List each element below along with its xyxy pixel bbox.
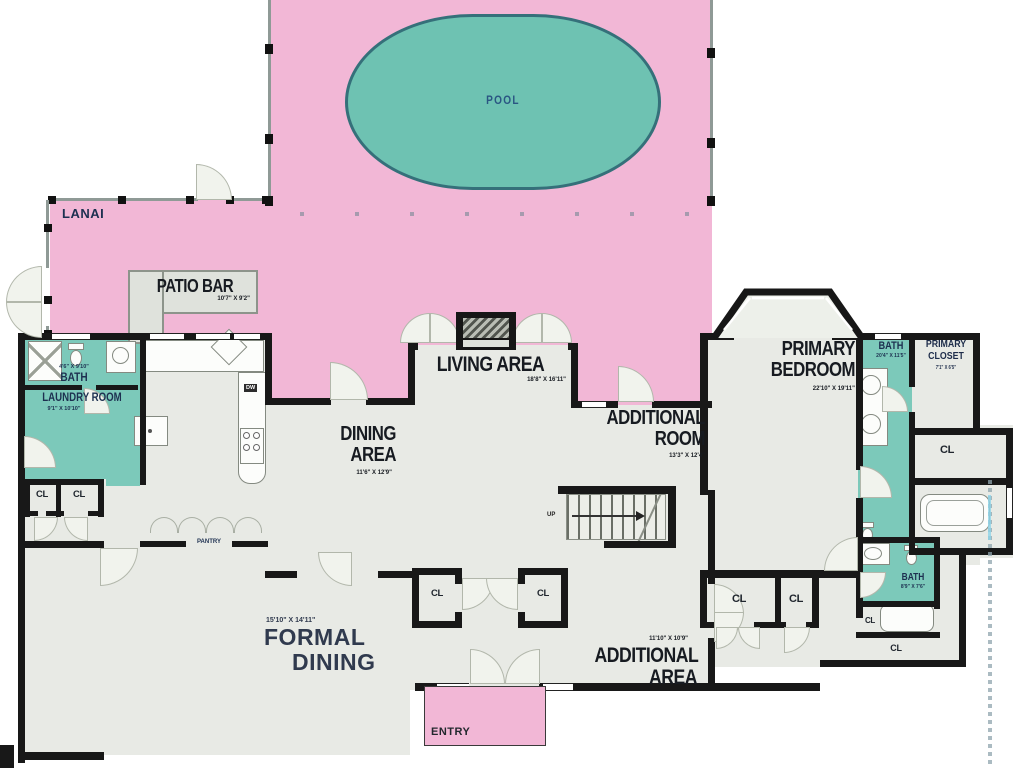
closet-label: CL — [860, 616, 880, 625]
screen-wall — [710, 0, 713, 206]
deck-dot — [465, 212, 469, 216]
wall — [412, 568, 419, 628]
room-label-pool: POOL — [370, 93, 635, 107]
room-dims-living: 18'8" X 16'11" — [448, 377, 566, 383]
screen-post — [44, 224, 52, 232]
stove-burner — [253, 432, 260, 439]
deck-dot — [630, 212, 634, 216]
wall — [24, 385, 82, 390]
room-dims-additional-area: 11'10" X 10'9" — [600, 636, 688, 642]
wall — [518, 612, 525, 628]
closet-label: CL — [64, 489, 94, 500]
dishwasher-label: DW — [244, 384, 257, 392]
wall — [24, 511, 38, 516]
watermark-highlight — [988, 495, 991, 540]
wall — [856, 537, 940, 543]
primary-bedroom-line2: BEDROOM — [729, 360, 855, 381]
wall — [0, 745, 14, 768]
wall — [856, 632, 940, 638]
wall — [18, 541, 104, 548]
closet-label: CL — [722, 593, 756, 605]
screen-post — [44, 296, 52, 304]
wall — [558, 486, 676, 494]
fixture — [926, 500, 984, 526]
room-label-primary-bath: BATH — [872, 340, 911, 352]
room-dims-primary-closet: 7'1" X 6'5" — [921, 362, 971, 374]
additional-room-line1: ADDITIONAL — [596, 408, 705, 429]
room-dims-bath2: 8'9" X 7'6" — [888, 584, 938, 590]
wall — [455, 612, 462, 628]
room-dims-patio-bar: 10'7" X 9'2" — [150, 296, 250, 302]
window — [543, 683, 573, 691]
stove-burner — [253, 444, 260, 451]
wall — [455, 568, 462, 584]
room-label-primary-closet: PRIMARY CLOSET 7'1" X 6'5" — [921, 338, 971, 374]
fixture — [864, 547, 882, 560]
wall — [518, 621, 568, 628]
wall — [18, 752, 104, 760]
window — [196, 333, 230, 340]
wall — [668, 486, 676, 548]
wall — [88, 511, 104, 516]
stove-burner — [243, 432, 250, 439]
wall — [265, 571, 297, 578]
wall — [934, 537, 940, 609]
room-label-laundry: LAUNDRY ROOM — [33, 392, 130, 404]
wall — [856, 333, 863, 470]
closet-label: CL — [884, 643, 908, 653]
wall — [912, 428, 977, 435]
screen-post — [186, 196, 194, 204]
screen-post — [265, 134, 273, 144]
formal-dining-line2: DINING — [292, 649, 376, 676]
dining-line1: DINING — [315, 424, 396, 445]
closet-label: CL — [782, 593, 810, 605]
screen-post — [707, 138, 715, 148]
room-dims-primary-bath: 20'4" X 11'5" — [866, 353, 916, 359]
room-label-entry: ENTRY — [431, 726, 470, 738]
wall — [820, 660, 966, 667]
dining-line2: AREA — [315, 445, 396, 466]
wall — [604, 541, 676, 548]
closet-label: CL — [932, 444, 962, 456]
wall — [265, 333, 272, 405]
room-dims-additional-room: 13'3" X 12'4" — [613, 453, 705, 459]
floor-plan: DW — [0, 0, 1024, 768]
stairs-direction-arrow — [636, 511, 645, 521]
door-arc — [6, 302, 42, 338]
deck-dot — [355, 212, 359, 216]
room-dims-primary-bedroom: 22'10" X 19'11" — [763, 386, 855, 392]
wall — [561, 568, 568, 628]
screen-post — [262, 196, 270, 204]
screen-wall — [268, 0, 271, 206]
additional-room-line2: ROOM — [596, 429, 705, 450]
room-dims-laundry: 9'1" X 10'10" — [24, 406, 104, 412]
room-dims-dining: 11'6" X 12'9" — [300, 470, 392, 476]
door-arc — [196, 164, 232, 200]
wall — [408, 343, 418, 350]
sink — [861, 375, 881, 395]
additional-area-line1: ADDITIONAL — [595, 645, 697, 667]
room-label-dining: DINING AREA — [315, 424, 396, 466]
wall — [856, 601, 940, 607]
deck-dot — [410, 212, 414, 216]
closet-label: CL — [420, 588, 454, 599]
screen-wall — [46, 200, 49, 268]
wall — [775, 576, 781, 628]
room-label-pantry: PANTRY — [186, 539, 232, 545]
door-arc — [6, 266, 42, 302]
deck-dot — [300, 212, 304, 216]
room-label-primary-bedroom: PRIMARY BEDROOM — [729, 339, 855, 381]
screen-post — [48, 196, 56, 204]
closet-label: CL — [30, 489, 54, 500]
wall — [708, 490, 715, 584]
room-label-living: LIVING AREA — [421, 353, 560, 377]
primary-closet-line1: PRIMARY — [921, 338, 971, 350]
deck-dot — [685, 212, 689, 216]
window — [234, 333, 260, 340]
room-label-patio-bar: PATIO BAR — [145, 276, 244, 297]
wall — [909, 478, 1013, 485]
deck-dot — [575, 212, 579, 216]
screen-post — [118, 196, 126, 204]
window — [52, 333, 90, 340]
wall — [140, 541, 186, 547]
closet-label: CL — [526, 588, 560, 599]
wall — [24, 479, 104, 485]
primary-closet-line2: CLOSET — [921, 350, 971, 362]
wall — [378, 571, 415, 578]
wall — [571, 343, 578, 405]
wall — [812, 570, 819, 628]
wall — [232, 541, 268, 547]
primary-bedroom-line1: PRIMARY — [729, 339, 855, 360]
window — [1006, 488, 1013, 518]
toilet — [68, 343, 84, 350]
wall — [700, 570, 707, 628]
formal-dining-line1: FORMAL — [264, 624, 365, 651]
room-label-bath2: BATH — [894, 572, 933, 583]
stove-burner — [243, 444, 250, 451]
sink — [861, 414, 881, 434]
screen-post — [265, 44, 273, 54]
window — [582, 401, 606, 408]
wall — [959, 553, 966, 667]
screen-post — [707, 48, 715, 58]
window — [150, 333, 184, 340]
fixture — [112, 347, 129, 364]
wall — [46, 511, 64, 516]
room-label-additional-area: ADDITIONAL AREA — [595, 645, 697, 689]
deck-dot — [520, 212, 524, 216]
room-dims-formal-dining: 15'10" X 14'11" — [266, 617, 315, 624]
screen-post — [707, 196, 715, 206]
additional-area-line2: AREA — [595, 667, 697, 689]
stairs-up-label: UP — [547, 512, 555, 518]
bathtub — [880, 604, 934, 632]
wall — [18, 333, 25, 763]
bay-window — [706, 282, 866, 340]
window — [875, 333, 901, 340]
wall — [265, 398, 331, 405]
room-label-lanai: LANAI — [62, 206, 104, 221]
wall — [408, 343, 415, 405]
room-label-additional-room: ADDITIONAL ROOM — [596, 408, 705, 450]
wall — [96, 385, 138, 390]
wall — [140, 333, 146, 485]
wall — [973, 333, 980, 435]
room-label-bath1: BATH — [49, 370, 99, 384]
wall — [518, 568, 525, 584]
